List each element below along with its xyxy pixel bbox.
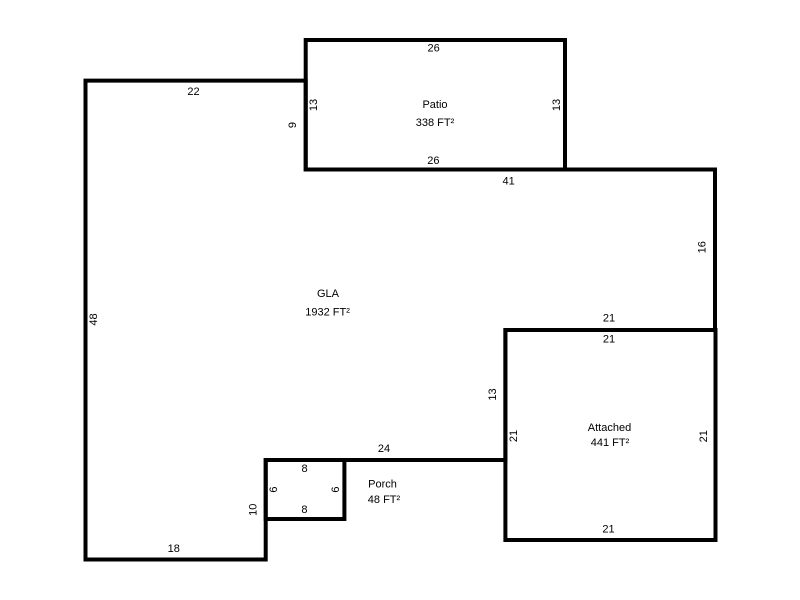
svg-text:13: 13 bbox=[308, 99, 320, 111]
svg-text:21: 21 bbox=[603, 333, 615, 345]
svg-text:Attached: Attached bbox=[588, 422, 631, 434]
svg-text:338 FT²: 338 FT² bbox=[416, 117, 455, 129]
svg-text:48 FT²: 48 FT² bbox=[368, 494, 401, 506]
svg-text:21: 21 bbox=[698, 430, 710, 442]
svg-text:9: 9 bbox=[287, 122, 299, 128]
svg-text:Patio: Patio bbox=[422, 99, 447, 111]
svg-text:24: 24 bbox=[378, 443, 390, 455]
svg-text:Porch: Porch bbox=[368, 479, 397, 491]
svg-text:26: 26 bbox=[427, 155, 439, 167]
svg-text:6: 6 bbox=[330, 486, 342, 492]
svg-text:10: 10 bbox=[247, 504, 259, 516]
svg-text:1932 FT²: 1932 FT² bbox=[305, 307, 350, 319]
svg-text:GLA: GLA bbox=[317, 288, 340, 300]
svg-text:48: 48 bbox=[88, 313, 100, 325]
svg-text:8: 8 bbox=[302, 463, 308, 475]
svg-text:26: 26 bbox=[427, 43, 439, 55]
svg-text:13: 13 bbox=[551, 99, 563, 111]
svg-text:441 FT²: 441 FT² bbox=[591, 437, 630, 449]
svg-text:6: 6 bbox=[268, 486, 280, 492]
svg-text:16: 16 bbox=[696, 241, 708, 253]
svg-text:8: 8 bbox=[301, 504, 307, 516]
svg-text:21: 21 bbox=[602, 523, 614, 535]
svg-text:22: 22 bbox=[187, 86, 199, 98]
svg-text:41: 41 bbox=[502, 176, 514, 188]
svg-text:21: 21 bbox=[508, 430, 520, 442]
svg-text:13: 13 bbox=[487, 388, 499, 400]
svg-text:21: 21 bbox=[603, 312, 615, 324]
svg-text:18: 18 bbox=[168, 543, 180, 555]
